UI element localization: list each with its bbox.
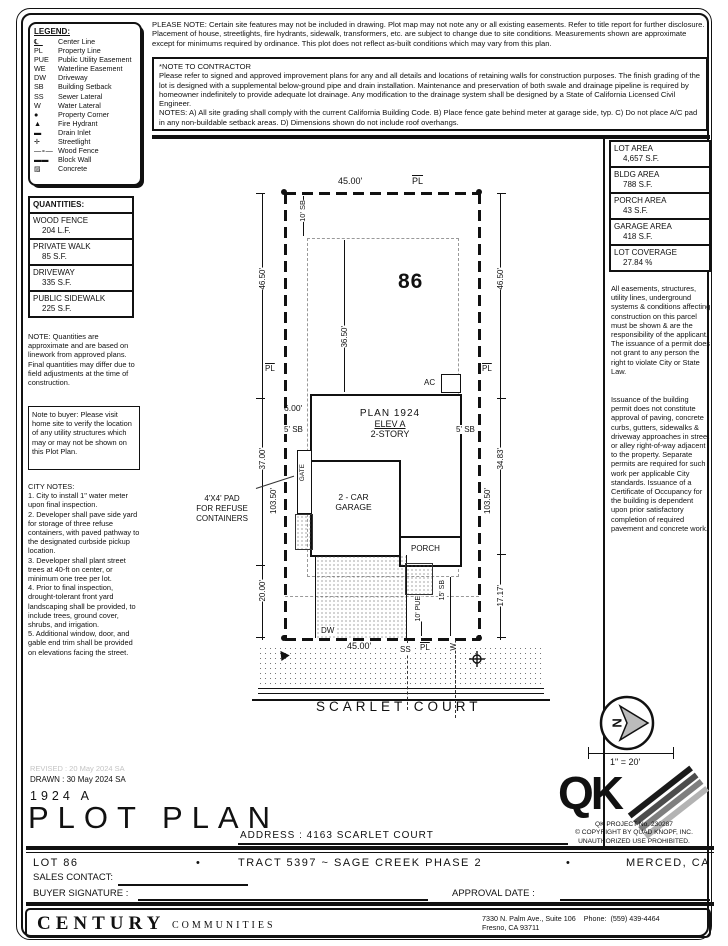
scale-tick — [588, 747, 589, 759]
quantities-table: QUANTITIES: WOOD FENCE204 L.F. PRIVATE W… — [28, 198, 134, 318]
house-front-dim-line — [344, 240, 345, 392]
streetlight-symbol — [468, 650, 486, 672]
ac-label: AC — [424, 378, 435, 387]
right-dim-mid-label: 34.83' — [495, 448, 506, 470]
easement-note-1: All easements, structures, utility lines… — [611, 284, 711, 376]
ss-label: SS — [399, 645, 412, 654]
contractor-note-box: *NOTE TO CONTRACTOR Please refer to sign… — [152, 57, 708, 131]
dim-line-left — [262, 193, 263, 640]
private-walk-cell: PRIVATE WALK85 S.F. — [28, 238, 134, 266]
plan-story: 2-STORY — [345, 429, 435, 439]
refuse-pad-label: 4'X4' PAD FOR REFUSE CONTAINERS — [183, 494, 261, 524]
buyer-signature-line — [138, 899, 428, 901]
brand-box: CENTURY COMMUNITIES 7330 N. Palm Ave., S… — [25, 908, 711, 938]
brand-address-line2: Fresno, CA 93711 — [482, 923, 539, 932]
legend-item-centerline: ℄Center Line — [34, 37, 136, 46]
legend-item-concrete: ▨Concrete — [34, 164, 136, 173]
city-note-4: 4. Prior to final inspection, drought-to… — [28, 583, 140, 629]
pue-icon: PUE — [34, 55, 58, 64]
city-notes-title: CITY NOTES: — [28, 482, 140, 491]
qk-rights: UNAUTHORIZED USE PROHIBITED. — [558, 838, 710, 846]
buyer-note-box: Note to buyer: Please visit home site to… — [28, 406, 140, 470]
plan-name: PLAN 1924 — [345, 408, 435, 419]
qk-copyright: © COPYRIGHT BY QUAD KNOPF, INC. — [558, 829, 710, 837]
property-line-icon: PL — [34, 46, 58, 55]
porch-label: PORCH — [411, 544, 440, 553]
title-rule-thick — [26, 846, 714, 850]
right-pl-label: PL — [481, 364, 493, 373]
pue-label: 10' PUE — [414, 596, 423, 621]
dim-line-right — [500, 193, 501, 640]
drain-inlet-icon: ▬ — [34, 128, 58, 137]
city-note-3: 3. Developer shall plant street trees at… — [28, 556, 140, 584]
garage-label-block: 2 - CAR GARAGE — [310, 492, 397, 512]
bldg-area-cell: BLDG AREA788 S.F. — [609, 166, 711, 194]
dim-tick — [256, 637, 265, 638]
legend-item-property-line: PLProperty Line — [34, 46, 136, 55]
brand-name: CENTURY — [37, 913, 165, 935]
approval-date-label: APPROVAL DATE : — [452, 888, 535, 899]
right-depth-label: 103.50' — [482, 488, 493, 514]
front-dim-label: 45.00' — [338, 176, 362, 186]
contractor-note-body: Please refer to signed and approved impr… — [159, 71, 701, 108]
streetlight-icon: ✛ — [34, 137, 58, 146]
side-setback-right-label: 5' SB — [455, 425, 476, 434]
scale-label: 1" = 20' — [610, 757, 640, 767]
city-note-5: 5. Additional window, door, and gable en… — [28, 629, 140, 657]
dim-tick — [256, 398, 265, 399]
rear-dim-label: 45.00' — [346, 641, 372, 651]
water-lateral-label: W — [448, 643, 459, 651]
left-depth-label: 103.50' — [268, 488, 279, 514]
legend-item-dw: DWDriveway — [34, 73, 136, 82]
title-rule-thin — [26, 852, 714, 853]
left-dim-top-label: 46.50' — [257, 268, 268, 290]
legend-item-sb: SBBuilding Setback — [34, 82, 136, 91]
north-arrow-icon: N — [598, 694, 656, 752]
rear-setback-dim-line — [450, 577, 451, 636]
wood-fence-cell: WOOD FENCE204 L.F. — [28, 212, 134, 240]
fire-hydrant-icon: ▲ — [34, 119, 58, 128]
curb-line — [258, 688, 544, 689]
easement-note-2: Issuance of the building permit does not… — [611, 395, 711, 533]
area-table: LOT AREA4,657 S.F. BLDG AREA788 S.F. POR… — [609, 142, 711, 272]
property-corner — [281, 189, 287, 195]
front-pl-label: PL — [412, 176, 423, 186]
dim-tick — [256, 193, 265, 194]
legend-item-wood-fence: —∘—Wood Fence — [34, 146, 136, 155]
footer-city: MERCED, CA — [626, 857, 710, 869]
rear-setback-label: 15' SB — [438, 580, 447, 600]
right-dim-top-label: 46.50' — [495, 268, 506, 290]
property-corner-icon: ● — [34, 110, 58, 119]
sales-contact-label: SALES CONTACT: — [33, 872, 113, 883]
concrete-icon: ▨ — [34, 164, 58, 173]
legend-item-corner: ●Property Corner — [34, 110, 136, 119]
north-letter: N — [610, 718, 625, 727]
scale-tick — [673, 747, 674, 759]
contractor-note-title: *NOTE TO CONTRACTOR — [159, 62, 701, 71]
footer-lot: LOT 86 — [33, 857, 79, 869]
legend-item-hydrant: ▲Fire Hydrant — [34, 119, 136, 128]
top-divider-bar — [152, 135, 710, 139]
property-line-left — [284, 193, 287, 639]
dim-tick — [497, 398, 506, 399]
rear-pl-label: PL — [419, 643, 431, 652]
waterline-easement-icon: WE — [34, 64, 58, 73]
scale-bar — [588, 753, 674, 754]
city-note-2: 2. Developer shall pave side yard for st… — [28, 510, 140, 556]
water-lateral-icon: W — [34, 101, 58, 110]
curb-line — [258, 693, 544, 694]
legend-item-block-wall: ▬▬Block Wall — [34, 155, 136, 164]
drawn-date: DRAWN : 30 May 2024 SA — [30, 775, 126, 784]
contractor-note-notes: NOTES: A) All site grading shall comply … — [159, 108, 701, 127]
garage-area-cell: GARAGE AREA418 S.F. — [609, 218, 711, 246]
property-corner — [476, 189, 482, 195]
sewer-lateral-icon: SS — [34, 92, 58, 101]
quantities-note: NOTE: Quantities are approximate and are… — [28, 332, 138, 387]
please-note: PLEASE NOTE: Certain site features may n… — [152, 20, 708, 48]
porch-walk — [405, 563, 433, 595]
ac-pad — [441, 374, 461, 393]
refuse-pad — [295, 514, 313, 550]
city-notes: CITY NOTES: 1. City to install 1" water … — [28, 482, 140, 657]
legend-item-ss: SSSewer Lateral — [34, 92, 136, 101]
legend-box: LEGEND: ℄Center Line PLProperty Line PUE… — [28, 22, 142, 186]
property-line-rear — [285, 638, 480, 641]
driveway-icon: DW — [34, 73, 58, 82]
footer-tract: TRACT 5397 ~ SAGE CREEK PHASE 2 — [238, 857, 482, 869]
address-underline — [238, 843, 568, 845]
legend-item-streetlight: ✛Streetlight — [34, 137, 136, 146]
plan-label-block: PLAN 1924 ELEV A 2-STORY — [345, 408, 435, 439]
footer-bullet: • — [566, 857, 570, 869]
legend-item-w: WWater Lateral — [34, 101, 136, 110]
centerline-icon: ℄ — [34, 37, 58, 46]
house-front-dim-label: 36.50' — [339, 326, 350, 348]
wood-fence-icon: —∘— — [34, 146, 58, 155]
footer-rule-thick — [26, 902, 714, 906]
lot-area-cell: LOT AREA4,657 S.F. — [609, 140, 711, 168]
dim-tick — [497, 637, 506, 638]
brand-sub-name: COMMUNITIES — [172, 920, 276, 931]
right-dim-bot-label: 17.17' — [495, 585, 506, 607]
front-setback-label: 10' SB — [297, 200, 308, 222]
city-note-1: 1. City to install 1" water meter upon f… — [28, 491, 140, 509]
setback-icon: SB — [34, 82, 58, 91]
qk-logo: QK — [558, 768, 621, 818]
dim-tick — [497, 193, 506, 194]
revised-date: REVISED : 20 May 2024 SA — [30, 764, 125, 773]
brand-address-line1: 7330 N. Palm Ave., Suite 106 Phone: (559… — [482, 914, 660, 923]
address-label: ADDRESS : 4163 SCARLET COURT — [240, 830, 434, 841]
street-name: SCARLET COURT — [316, 699, 482, 714]
left-dim-bot-label: 20.00' — [257, 580, 268, 602]
property-line-right — [478, 193, 481, 639]
lot-coverage-cell: LOT COVERAGE27.84 % — [609, 244, 711, 272]
porch-area-cell: PORCH AREA43 S.F. — [609, 192, 711, 220]
gate-label: GATE — [299, 464, 306, 481]
gate-dim-label: 6.00' — [284, 403, 302, 413]
legend-item-drain: ▬Drain Inlet — [34, 128, 136, 137]
left-pl-label: PL — [264, 364, 276, 373]
driveway-label: DW — [320, 626, 335, 635]
lot-number: 86 — [398, 270, 423, 294]
property-corner — [476, 635, 482, 641]
legend-item-we: WEWaterline Easement — [34, 64, 136, 73]
driveway-cell: DRIVEWAY335 S.F. — [28, 264, 134, 292]
plan-elev: ELEV A — [345, 419, 435, 429]
dim-tick — [497, 554, 506, 555]
side-setback-left-label: 5' SB — [283, 425, 304, 434]
qk-credits: QK PROJECT No. 230287 © COPYRIGHT BY QUA… — [558, 821, 710, 846]
property-line-front — [285, 192, 480, 195]
left-dim-mid-label: 37.00' — [257, 448, 268, 470]
property-corner — [281, 635, 287, 641]
approval-date-line — [560, 899, 710, 901]
legend-title: LEGEND: — [34, 27, 136, 36]
dim-tick — [256, 565, 265, 566]
public-sidewalk-cell: PUBLIC SIDEWALK225 S.F. — [28, 290, 134, 318]
block-wall-icon: ▬▬ — [34, 155, 58, 164]
buyer-signature-label: BUYER SIGNATURE : — [33, 888, 128, 899]
legend-item-pue: PUEPublic Utility Easement — [34, 55, 136, 64]
sales-contact-line — [118, 884, 248, 886]
footer-bullet: • — [196, 857, 200, 869]
